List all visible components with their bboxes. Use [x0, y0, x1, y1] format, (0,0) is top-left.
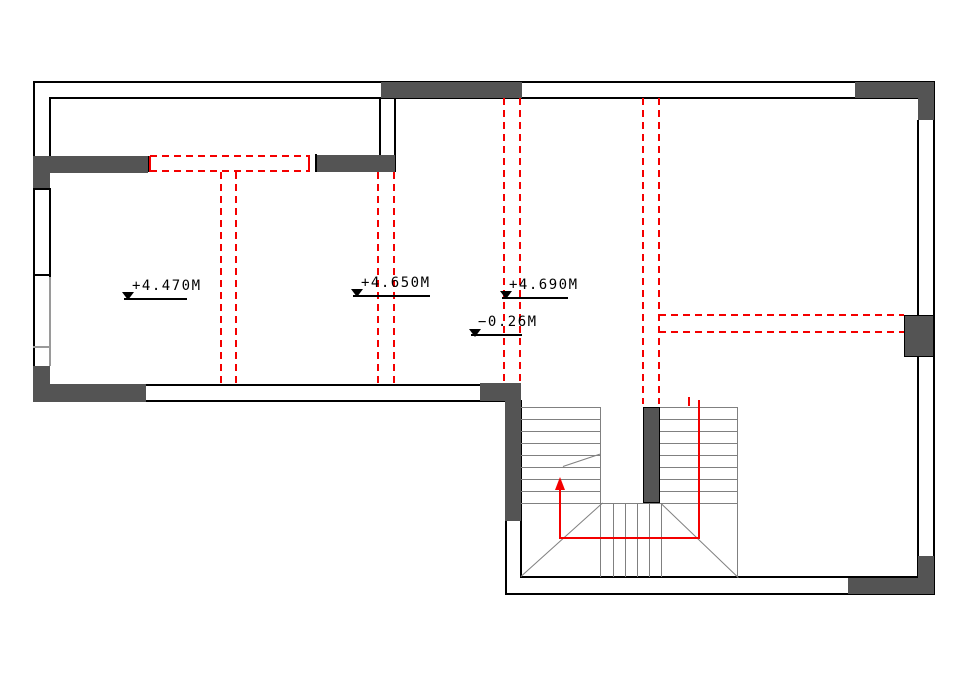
stair-tread	[521, 419, 601, 420]
wall-fill-bottom-left-h	[33, 384, 146, 402]
stair-winder-line	[661, 503, 662, 577]
red-dashed-hline	[150, 170, 310, 172]
wall-fill-stairwell-corner-h	[480, 383, 521, 401]
wall-line-room-divider-a	[379, 97, 381, 156]
elevation-underline	[124, 298, 187, 300]
window-divider-3	[33, 346, 51, 348]
wall-fill-upper-left-stub	[33, 156, 50, 189]
elevation-underline	[353, 295, 430, 297]
wall-line-left-inner	[49, 97, 51, 157]
wall-fill-bottom-right-h	[848, 578, 934, 594]
floor-plan: +4.470M +4.650M +4.690M −0.26M	[0, 0, 970, 685]
window-frame-inner2	[49, 277, 51, 366]
red-dashed-hline	[659, 314, 904, 316]
stair-direction-line-h	[559, 537, 700, 539]
elevation-label: +4.650M	[361, 276, 431, 290]
window-divider-1	[33, 188, 51, 190]
stair-direction-line-v1	[559, 488, 561, 539]
stair-tread	[521, 467, 601, 468]
red-dashed-vline	[642, 98, 644, 404]
red-dashed-endcap	[149, 156, 151, 172]
window-divider-2	[33, 274, 51, 276]
stair-winder-line	[649, 503, 650, 577]
red-dashed-vline	[220, 172, 222, 384]
wall-fill-top-right-h	[855, 82, 934, 98]
stair-tread	[521, 407, 601, 408]
wall-fill-right-pier	[904, 315, 934, 357]
red-dash-tick	[688, 397, 690, 406]
stair-winder-line	[637, 503, 638, 577]
elevation-underline	[502, 297, 568, 299]
red-dashed-vline	[503, 98, 505, 383]
red-dashed-hline	[150, 155, 310, 157]
stair-direction-line-v2	[698, 400, 700, 539]
wall-fill-stairwell-corner-v	[505, 400, 521, 521]
wall-fill-upper-left-band	[33, 156, 148, 173]
elevation-triangle-icon	[469, 329, 481, 337]
stair-edge-right-flight	[737, 407, 738, 577]
stair-tread	[521, 491, 601, 492]
red-dashed-vline	[235, 172, 237, 384]
stair-winder-line	[625, 503, 626, 577]
stair-winder-diagonal-left	[521, 503, 604, 578]
elevation-label: +4.690M	[509, 278, 579, 292]
elevation-label: −0.26M	[478, 315, 538, 329]
red-dashed-vline	[519, 98, 521, 383]
window-frame-inner	[49, 189, 51, 277]
red-dashed-endcap	[308, 156, 310, 172]
wall-fill-stair-middle	[643, 407, 660, 503]
red-dashed-vline	[658, 98, 660, 404]
wall-fill-top-middle	[381, 82, 522, 98]
stair-tread	[521, 431, 601, 432]
wall-fill-band-right-segment	[317, 155, 395, 172]
stair-tread	[521, 443, 601, 444]
elevation-underline	[471, 334, 522, 336]
red-dashed-hline	[659, 331, 904, 333]
stair-landing-top-line	[521, 503, 738, 504]
wall-line-left-outer	[33, 81, 35, 402]
stair-edge-left-flight	[600, 407, 601, 577]
wall-fill-top-right-v	[918, 97, 934, 120]
wall-line-lower-band-top	[146, 384, 480, 386]
stair-winder-line	[613, 503, 614, 577]
elevation-label: +4.470M	[132, 279, 202, 293]
